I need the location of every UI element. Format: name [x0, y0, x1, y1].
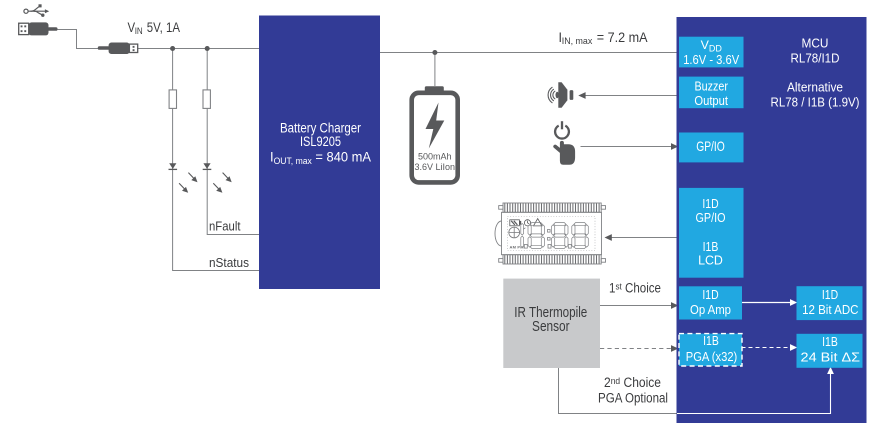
svg-text:I1B: I1B — [822, 334, 838, 349]
svg-text:VIN 5V, 1A: VIN 5V, 1A — [128, 20, 181, 37]
svg-text:Alternative: Alternative — [787, 80, 843, 95]
svg-text:ISL9205: ISL9205 — [300, 134, 341, 149]
svg-text:PGA Optional: PGA Optional — [598, 391, 668, 406]
svg-text:nStatus: nStatus — [209, 255, 249, 270]
svg-text:24 Bit ΔΣ: 24 Bit ΔΣ — [801, 350, 861, 365]
svg-text:nFault: nFault — [209, 219, 241, 234]
svg-text:LCD: LCD — [698, 253, 723, 268]
svg-text:GP/IO: GP/IO — [696, 210, 726, 225]
svg-text:I1B: I1B — [703, 239, 719, 254]
svg-text:1.6V - 3.6V: 1.6V - 3.6V — [683, 52, 739, 67]
svg-text:I1B: I1B — [703, 333, 719, 348]
svg-text:I1D: I1D — [702, 287, 718, 302]
svg-text:Sensor: Sensor — [532, 318, 570, 335]
svg-text:RL78/I1D: RL78/I1D — [791, 51, 840, 66]
svg-text:PGA (x32): PGA (x32) — [686, 349, 738, 364]
svg-text:Op Amp: Op Amp — [690, 302, 731, 317]
svg-text:1st Choice: 1st Choice — [609, 281, 661, 296]
svg-text:GP/IO: GP/IO — [696, 138, 725, 154]
svg-text:Output: Output — [694, 93, 728, 108]
svg-text:I1D: I1D — [822, 287, 838, 302]
svg-text:3.6V LiIon: 3.6V LiIon — [415, 162, 456, 172]
svg-text:RL78 / I1B (1.9V): RL78 / I1B (1.9V) — [771, 95, 860, 110]
svg-text:500mAh: 500mAh — [418, 152, 452, 162]
svg-text:MCU: MCU — [802, 36, 829, 51]
svg-text:2nd Choice: 2nd Choice — [604, 375, 661, 390]
svg-text:I1D: I1D — [702, 196, 718, 211]
svg-text:IIN, max = 7.2 mA: IIN, max = 7.2 mA — [559, 30, 648, 47]
svg-text:12 Bit ADC: 12 Bit ADC — [802, 302, 859, 317]
svg-text:Buzzer: Buzzer — [694, 78, 728, 93]
